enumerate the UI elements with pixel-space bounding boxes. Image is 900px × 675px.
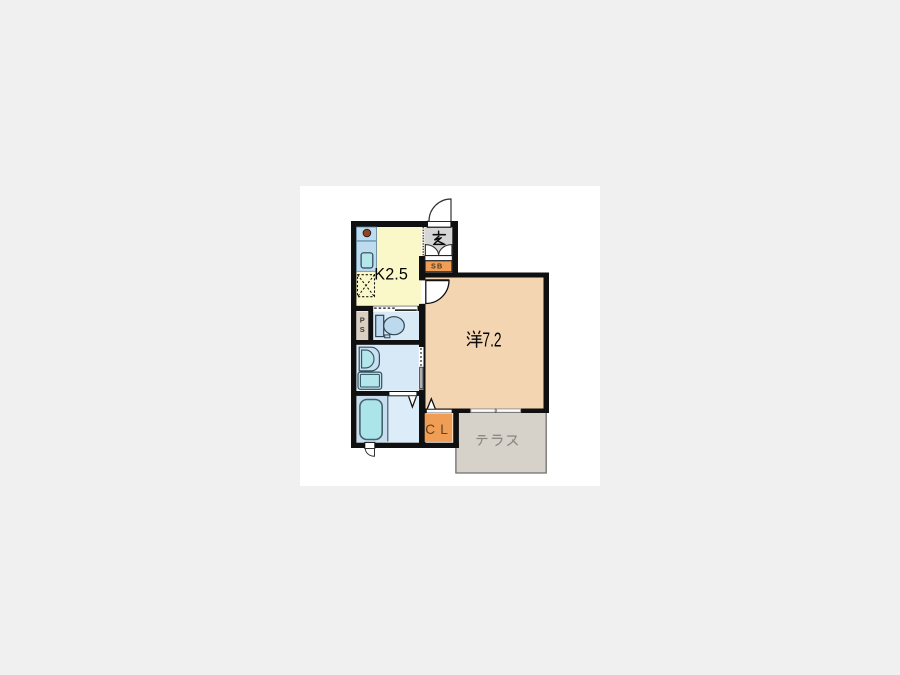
svg-text:SB: SB <box>431 261 443 270</box>
svg-text:7.2: 7.2 <box>482 330 501 352</box>
svg-text:S: S <box>360 325 365 334</box>
svg-text:CL: CL <box>425 422 453 437</box>
svg-text:P: P <box>360 316 365 325</box>
svg-text:K2.5: K2.5 <box>374 265 408 283</box>
